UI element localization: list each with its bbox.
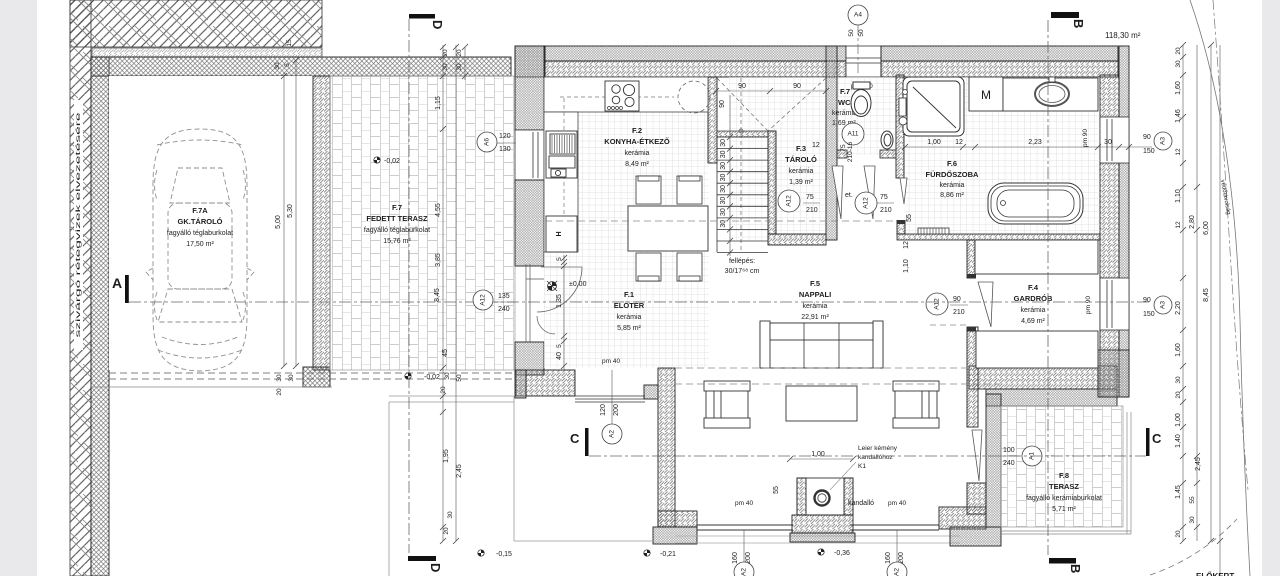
svg-text:kerámia: kerámia (625, 150, 650, 157)
svg-text:A6: A6 (484, 138, 491, 146)
svg-text:150: 150 (1143, 311, 1155, 318)
svg-text:2,80: 2,80 (1189, 215, 1196, 229)
svg-text:F.6: F.6 (947, 159, 957, 168)
svg-text:75: 75 (880, 194, 888, 201)
svg-text:160: 160 (885, 552, 892, 564)
svg-text:30: 30 (447, 511, 454, 519)
svg-text:kerámia: kerámia (789, 168, 814, 175)
svg-text:5: 5 (556, 257, 563, 261)
svg-text:210-16: 210-16 (847, 142, 854, 163)
svg-text:30: 30 (720, 185, 727, 193)
svg-text:ELŐKERT: ELŐKERT (1196, 572, 1234, 576)
svg-text:A: A (112, 275, 122, 291)
svg-text:NAPPALI: NAPPALI (799, 290, 831, 299)
svg-text:5,71 m²: 5,71 m² (1052, 506, 1076, 513)
svg-text:20: 20 (276, 388, 283, 396)
svg-text:1,00: 1,00 (1175, 413, 1182, 427)
svg-text:20: 20 (456, 49, 463, 57)
svg-text:12: 12 (1175, 148, 1182, 156)
svg-text:8,45: 8,45 (1203, 288, 1210, 302)
svg-text:12: 12 (903, 241, 910, 249)
svg-text:5,30: 5,30 (287, 204, 294, 218)
svg-text:1,00: 1,00 (811, 451, 825, 458)
svg-text:8,49 m²: 8,49 m² (625, 161, 649, 168)
svg-text:A12: A12 (934, 298, 941, 310)
svg-text:50: 50 (848, 29, 855, 37)
svg-text:40: 40 (556, 352, 563, 360)
svg-text:30: 30 (274, 62, 281, 70)
svg-text:pm 40: pm 40 (602, 358, 620, 365)
svg-text:30: 30 (276, 374, 283, 382)
svg-text:8,45: 8,45 (434, 288, 441, 302)
svg-text:KONYHA-ÉTKEZŐ: KONYHA-ÉTKEZŐ (604, 137, 670, 146)
svg-text:1,35: 1,35 (556, 294, 563, 308)
svg-text:C: C (570, 431, 580, 446)
svg-text:120: 120 (600, 404, 607, 416)
svg-text:20: 20 (1175, 530, 1182, 538)
svg-text:12: 12 (955, 139, 963, 146)
svg-text:30: 30 (720, 208, 727, 216)
svg-text:A2: A2 (609, 430, 616, 438)
svg-text:50: 50 (858, 29, 865, 37)
svg-text:130: 130 (499, 146, 511, 153)
svg-text:Leier kémény: Leier kémény (858, 445, 898, 452)
svg-text:12: 12 (1175, 221, 1182, 229)
svg-text:90: 90 (793, 83, 801, 90)
svg-text:30: 30 (442, 63, 449, 71)
svg-text:22,91 m²: 22,91 m² (801, 314, 829, 321)
svg-text:M: M (981, 88, 991, 102)
svg-text:-0,02: -0,02 (384, 158, 400, 165)
svg-text:F.2: F.2 (632, 126, 642, 135)
svg-text:1,10: 1,10 (1175, 189, 1182, 203)
svg-text:15: 15 (286, 39, 293, 47)
svg-text:F.1: F.1 (624, 290, 634, 299)
svg-text:±0,00: ±0,00 (569, 281, 587, 288)
svg-text:-0,21: -0,21 (660, 551, 676, 558)
svg-text:75: 75 (806, 194, 814, 201)
svg-text:GK.TÁROLÓ: GK.TÁROLÓ (178, 217, 223, 226)
svg-text:30/17⁶⁸ cm: 30/17⁶⁸ cm (725, 268, 760, 275)
svg-text:F.7: F.7 (840, 87, 850, 96)
svg-text:90: 90 (719, 100, 726, 108)
svg-text:1,39 m²: 1,39 m² (789, 179, 813, 186)
svg-text:30: 30 (720, 174, 727, 182)
svg-text:fagyálló téglaburkolat: fagyálló téglaburkolat (167, 230, 233, 237)
svg-text:pm 90: pm 90 (1082, 129, 1089, 147)
svg-text:K1: K1 (858, 463, 866, 470)
svg-text:C: C (1152, 431, 1162, 446)
svg-text:pm 40: pm 40 (735, 500, 753, 507)
svg-text:F.8: F.8 (1059, 471, 1069, 480)
svg-text:210: 210 (953, 309, 965, 316)
svg-text:5: 5 (284, 63, 291, 67)
svg-text:TERASZ: TERASZ (1049, 482, 1079, 491)
svg-text:1,95: 1,95 (443, 449, 450, 463)
svg-text:210: 210 (806, 207, 818, 214)
svg-text:75: 75 (840, 144, 847, 152)
svg-text:90: 90 (738, 83, 746, 90)
svg-text:A2: A2 (894, 568, 901, 576)
svg-text:1,40: 1,40 (1175, 434, 1182, 448)
svg-text:-0,15: -0,15 (496, 551, 512, 558)
svg-text:90: 90 (1143, 134, 1151, 141)
svg-text:H: H (556, 231, 563, 236)
svg-text:F.5: F.5 (810, 279, 820, 288)
svg-text:55: 55 (906, 214, 913, 222)
svg-text:12: 12 (812, 142, 820, 149)
svg-text:A3: A3 (1160, 301, 1167, 309)
svg-text:30: 30 (1104, 139, 1112, 146)
svg-text:120: 120 (499, 133, 511, 140)
svg-text:210: 210 (880, 207, 892, 214)
svg-text:30: 30 (444, 372, 451, 380)
svg-text:kerámia: kerámia (803, 303, 828, 310)
svg-text:1,00: 1,00 (927, 139, 941, 146)
svg-text:A12: A12 (786, 195, 793, 207)
svg-text:8,86 m²: 8,86 m² (940, 192, 964, 199)
svg-text:1,46: 1,46 (1175, 109, 1182, 123)
svg-text:FEDETT TERASZ: FEDETT TERASZ (366, 214, 428, 223)
svg-text:135: 135 (498, 293, 510, 300)
svg-text:B: B (1071, 19, 1086, 28)
svg-text:kerámia: kerámia (940, 182, 965, 189)
svg-text:20: 20 (1175, 47, 1182, 55)
svg-text:30: 30 (720, 197, 727, 205)
svg-text:fellépés:: fellépés: (729, 258, 755, 265)
svg-text:20: 20 (443, 527, 450, 535)
svg-text:1,15: 1,15 (435, 96, 442, 110)
svg-text:15,76 m²: 15,76 m² (383, 238, 411, 245)
svg-text:118,30 m²: 118,30 m² (1105, 31, 1141, 40)
svg-text:A4: A4 (854, 12, 862, 19)
svg-text:D: D (430, 20, 445, 29)
svg-text:fagyálló kerámiaburkolat: fagyálló kerámiaburkolat (1026, 495, 1102, 502)
svg-text:3,85: 3,85 (435, 253, 442, 267)
svg-text:szivárgó rétegvizek elvezetésé: szivárgó rétegvizek elvezetésére (75, 112, 82, 338)
svg-text:20: 20 (1175, 391, 1182, 399)
svg-text:FÜRDŐSZOBA: FÜRDŐSZOBA (926, 170, 979, 179)
svg-text:1,60: 1,60 (1175, 343, 1182, 357)
svg-text:20: 20 (440, 386, 447, 394)
svg-text:-0,02: -0,02 (424, 374, 440, 381)
svg-text:F.3: F.3 (796, 144, 806, 153)
svg-text:5,85 m²: 5,85 m² (617, 325, 641, 332)
svg-text:30: 30 (1189, 516, 1196, 524)
svg-text:20: 20 (442, 49, 449, 57)
svg-text:kerámia: kerámia (1021, 307, 1046, 314)
svg-text:1,45: 1,45 (1175, 485, 1182, 499)
svg-text:A2: A2 (741, 568, 748, 576)
svg-text:5,00: 5,00 (275, 215, 282, 229)
svg-text:pm 90: pm 90 (1085, 296, 1092, 314)
svg-text:1,10: 1,10 (903, 259, 910, 273)
svg-text:A12: A12 (863, 197, 870, 209)
svg-text:50: 50 (456, 374, 463, 382)
svg-text:2,45: 2,45 (456, 464, 463, 478)
svg-text:F.4: F.4 (1028, 283, 1039, 292)
svg-text:fagyálló téglaburkolat: fagyálló téglaburkolat (364, 227, 430, 234)
svg-text:et.: et. (845, 192, 853, 199)
svg-text:240: 240 (498, 306, 510, 313)
svg-text:2,45: 2,45 (1195, 457, 1202, 471)
svg-text:-0,36: -0,36 (834, 550, 850, 557)
svg-text:WC: WC (838, 98, 851, 107)
svg-text:100: 100 (1003, 447, 1015, 454)
svg-text:5: 5 (556, 344, 563, 348)
svg-text:30: 30 (720, 162, 727, 170)
svg-text:A12: A12 (480, 294, 487, 306)
svg-text:55: 55 (1189, 496, 1196, 504)
svg-text:kandalló: kandalló (848, 500, 874, 507)
svg-text:D: D (428, 563, 443, 572)
svg-text:4,55: 4,55 (435, 203, 442, 217)
svg-text:4,69 m²: 4,69 m² (1021, 318, 1045, 325)
svg-text:B: B (1068, 564, 1083, 573)
svg-text:30: 30 (288, 374, 295, 382)
svg-text:45: 45 (442, 349, 449, 357)
svg-text:6,00: 6,00 (1203, 221, 1210, 235)
svg-text:17,50 m²: 17,50 m² (186, 241, 214, 248)
svg-text:55: 55 (773, 486, 780, 494)
svg-text:TÁROLÓ: TÁROLÓ (785, 155, 817, 164)
svg-text:150: 150 (1143, 148, 1155, 155)
svg-text:30: 30 (720, 139, 727, 147)
svg-text:F.7: F.7 (392, 203, 402, 212)
svg-text:1,60: 1,60 (1175, 81, 1182, 95)
svg-text:30: 30 (720, 150, 727, 158)
svg-text:30: 30 (456, 63, 463, 71)
svg-text:90: 90 (1143, 297, 1151, 304)
svg-text:A11: A11 (847, 131, 858, 138)
svg-text:pm 40: pm 40 (888, 500, 906, 507)
svg-text:2,20: 2,20 (1175, 301, 1182, 315)
svg-text:160: 160 (732, 552, 739, 564)
svg-text:kerámia: kerámia (617, 314, 642, 321)
svg-text:A3: A3 (1160, 137, 1167, 145)
svg-text:240: 240 (1003, 460, 1015, 467)
svg-text:kandallóhoz: kandallóhoz (858, 454, 893, 461)
svg-text:200: 200 (613, 404, 620, 416)
svg-text:2,23: 2,23 (1028, 139, 1042, 146)
svg-text:30: 30 (1175, 376, 1182, 384)
svg-text:F.7A: F.7A (192, 206, 208, 215)
svg-text:30: 30 (1175, 60, 1182, 68)
